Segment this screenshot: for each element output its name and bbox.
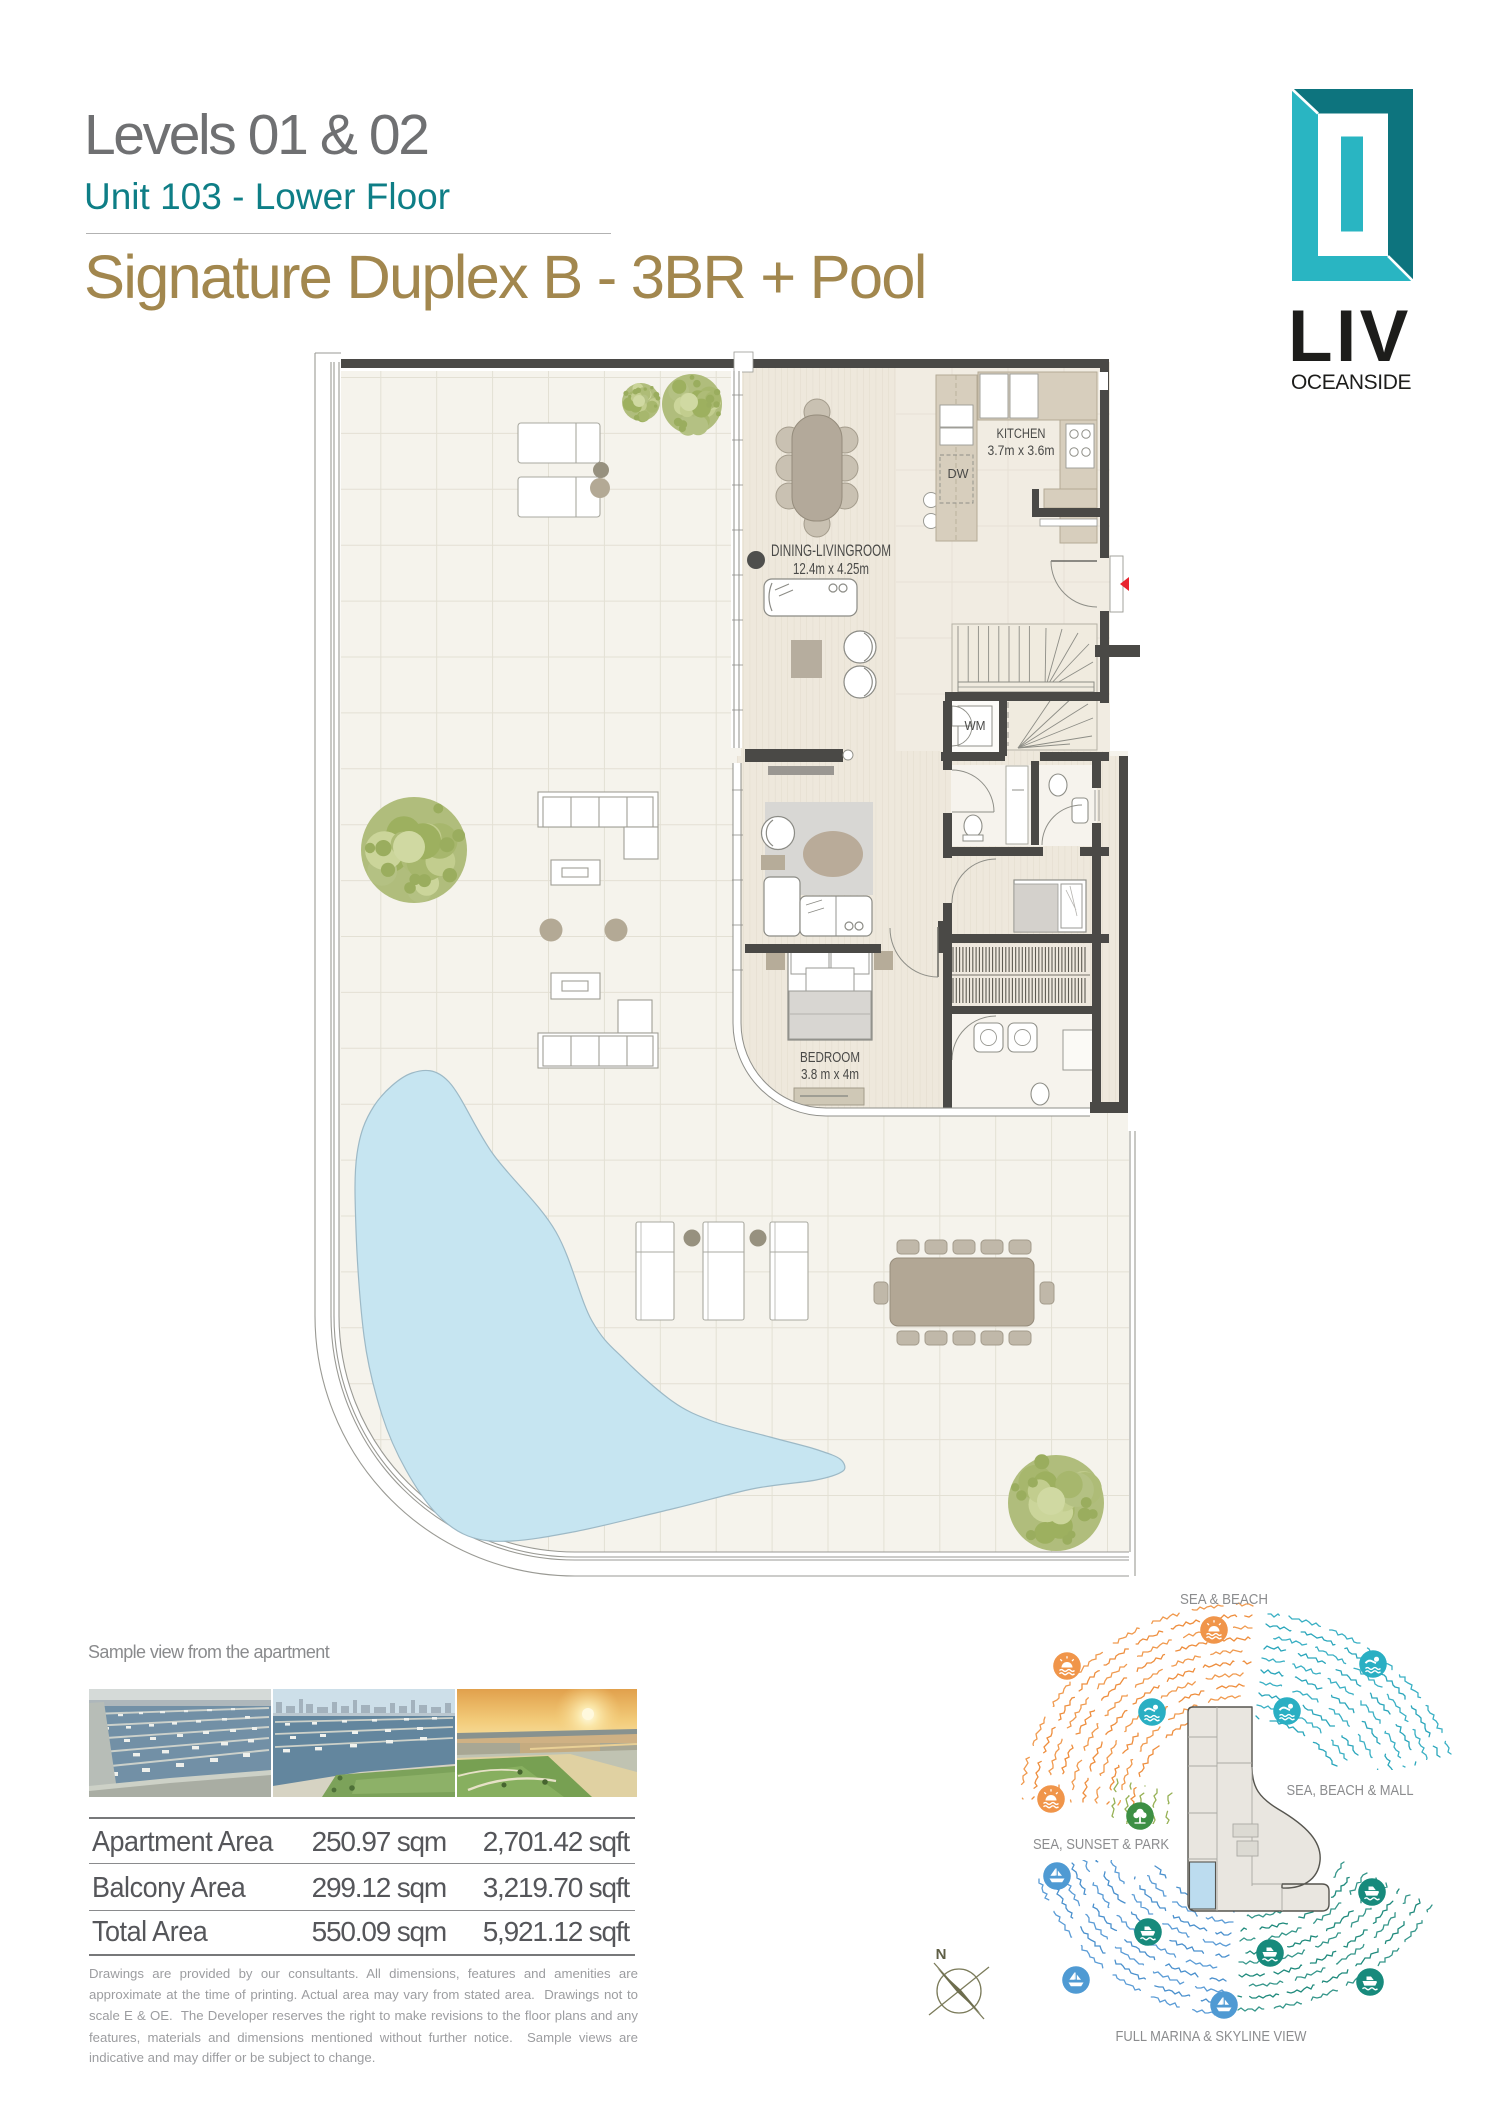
svg-text:SEA, BEACH & MALL: SEA, BEACH & MALL — [1287, 1782, 1414, 1799]
svg-text:BEDROOM: BEDROOM — [800, 1050, 860, 1066]
svg-text:WM: WM — [965, 718, 986, 733]
svg-text:SEA, SUNSET & PARK: SEA, SUNSET & PARK — [1033, 1836, 1169, 1853]
svg-text:FULL MARINA & SKYLINE VIEW: FULL MARINA & SKYLINE VIEW — [1116, 2028, 1308, 2045]
svg-text:DW: DW — [948, 466, 970, 481]
svg-text:N: N — [936, 1946, 947, 1963]
svg-text:DINING-LIVINGROOM: DINING-LIVINGROOM — [771, 541, 891, 560]
svg-text:12.4m x 4.25m: 12.4m x 4.25m — [793, 561, 869, 578]
svg-text:KITCHEN: KITCHEN — [997, 426, 1046, 441]
svg-text:3.7m x 3.6m: 3.7m x 3.6m — [988, 443, 1055, 458]
svg-text:SEA & BEACH: SEA & BEACH — [1180, 1591, 1268, 1608]
svg-text:3.8 m x 4m: 3.8 m x 4m — [801, 1067, 859, 1083]
